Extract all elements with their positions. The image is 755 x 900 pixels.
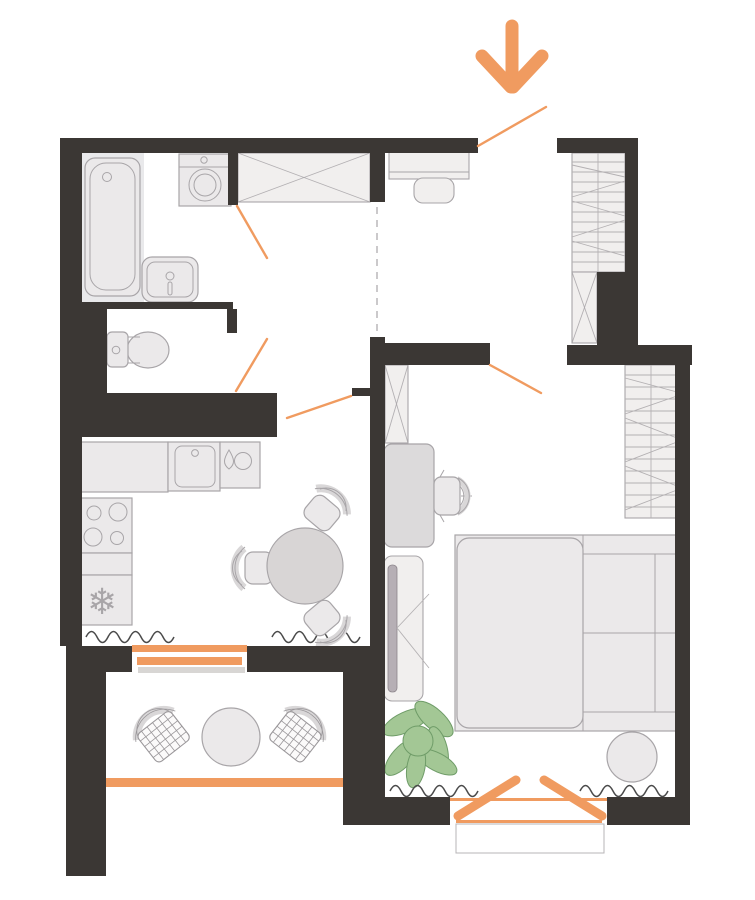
desk [384,444,434,547]
bed [455,535,677,731]
wall-kitchen-door-stub [352,388,370,396]
mattress [457,538,583,728]
radiator-squiggle [86,632,174,643]
plant [379,696,461,790]
washing-machine [179,154,231,206]
stove [78,498,132,553]
radiator-squiggle [390,786,478,797]
wall-wc-stub [227,309,237,333]
snowflake-icon: ❄ [87,582,117,623]
wall-top-right [557,138,638,153]
bathroom-sink [142,257,198,302]
bathroom [85,154,231,302]
bathtub [85,158,140,296]
bedroom-window [450,780,607,853]
wall-closet-stub [370,153,385,202]
fridge: ❄ [78,575,132,625]
shoe-unit-x [572,272,597,343]
wall-bedroom-top [385,343,490,365]
wall-wc-kitchen-L [60,393,277,437]
entry-stool [414,178,454,203]
wall-bedroom-right [675,365,690,825]
kitchen-door-swing [287,396,351,418]
pouf [607,732,657,782]
entry-door-swing [478,107,546,146]
bedroom-door-swing [490,365,541,393]
wardrobe-x-top [238,153,370,202]
wall-hall-bottom [567,345,692,365]
balcony-railing-window [106,778,343,787]
wall-bedroom-bottom-left [370,797,450,825]
office-chair [434,470,472,522]
dining-table [267,528,343,604]
wc-door-swing [236,339,267,391]
toilet [107,332,169,368]
dishwasher [220,442,260,488]
wall-hall-right [625,153,638,345]
counter [78,442,168,492]
kitchen-sink [168,442,220,491]
wall-bath-wc-divider [60,302,233,309]
wall-bedroom-left [370,337,385,825]
wall-top-left [60,138,478,153]
wc [107,332,169,368]
balcony-table [202,708,260,766]
counter-2 [78,553,132,575]
wall-wc-left [60,309,107,393]
tv-screen [388,565,397,692]
tv-unit [384,556,429,701]
wardrobe-x [385,365,408,443]
wall-kitchen-bottom-right [247,646,372,672]
dining [233,479,356,652]
wall-bedroom-bottom-right [607,797,690,825]
hallway [238,152,625,343]
wall-left-upper [60,153,82,303]
wicker-chair [126,698,195,766]
shelf-unit [572,153,625,272]
wardrobe-shelves [625,365,677,518]
floor-plan-svg: ❄ [0,0,755,900]
wicker-chair [265,698,334,766]
wall-left-kitchen [60,437,82,646]
entrance-arrow-icon [482,26,542,87]
bathroom-door-swing [237,206,267,258]
balcony-door-threshold [132,645,247,673]
radiator-squiggle [580,786,668,797]
entry-bench [389,152,469,203]
wall-balcony-right [343,672,370,825]
floor-plan: ❄ [0,0,755,900]
wall-hall-block [597,272,625,345]
bedroom [379,365,677,797]
wall-balcony-left [66,646,106,876]
window-ledge [456,824,604,853]
wall-bath-stub [228,153,238,205]
